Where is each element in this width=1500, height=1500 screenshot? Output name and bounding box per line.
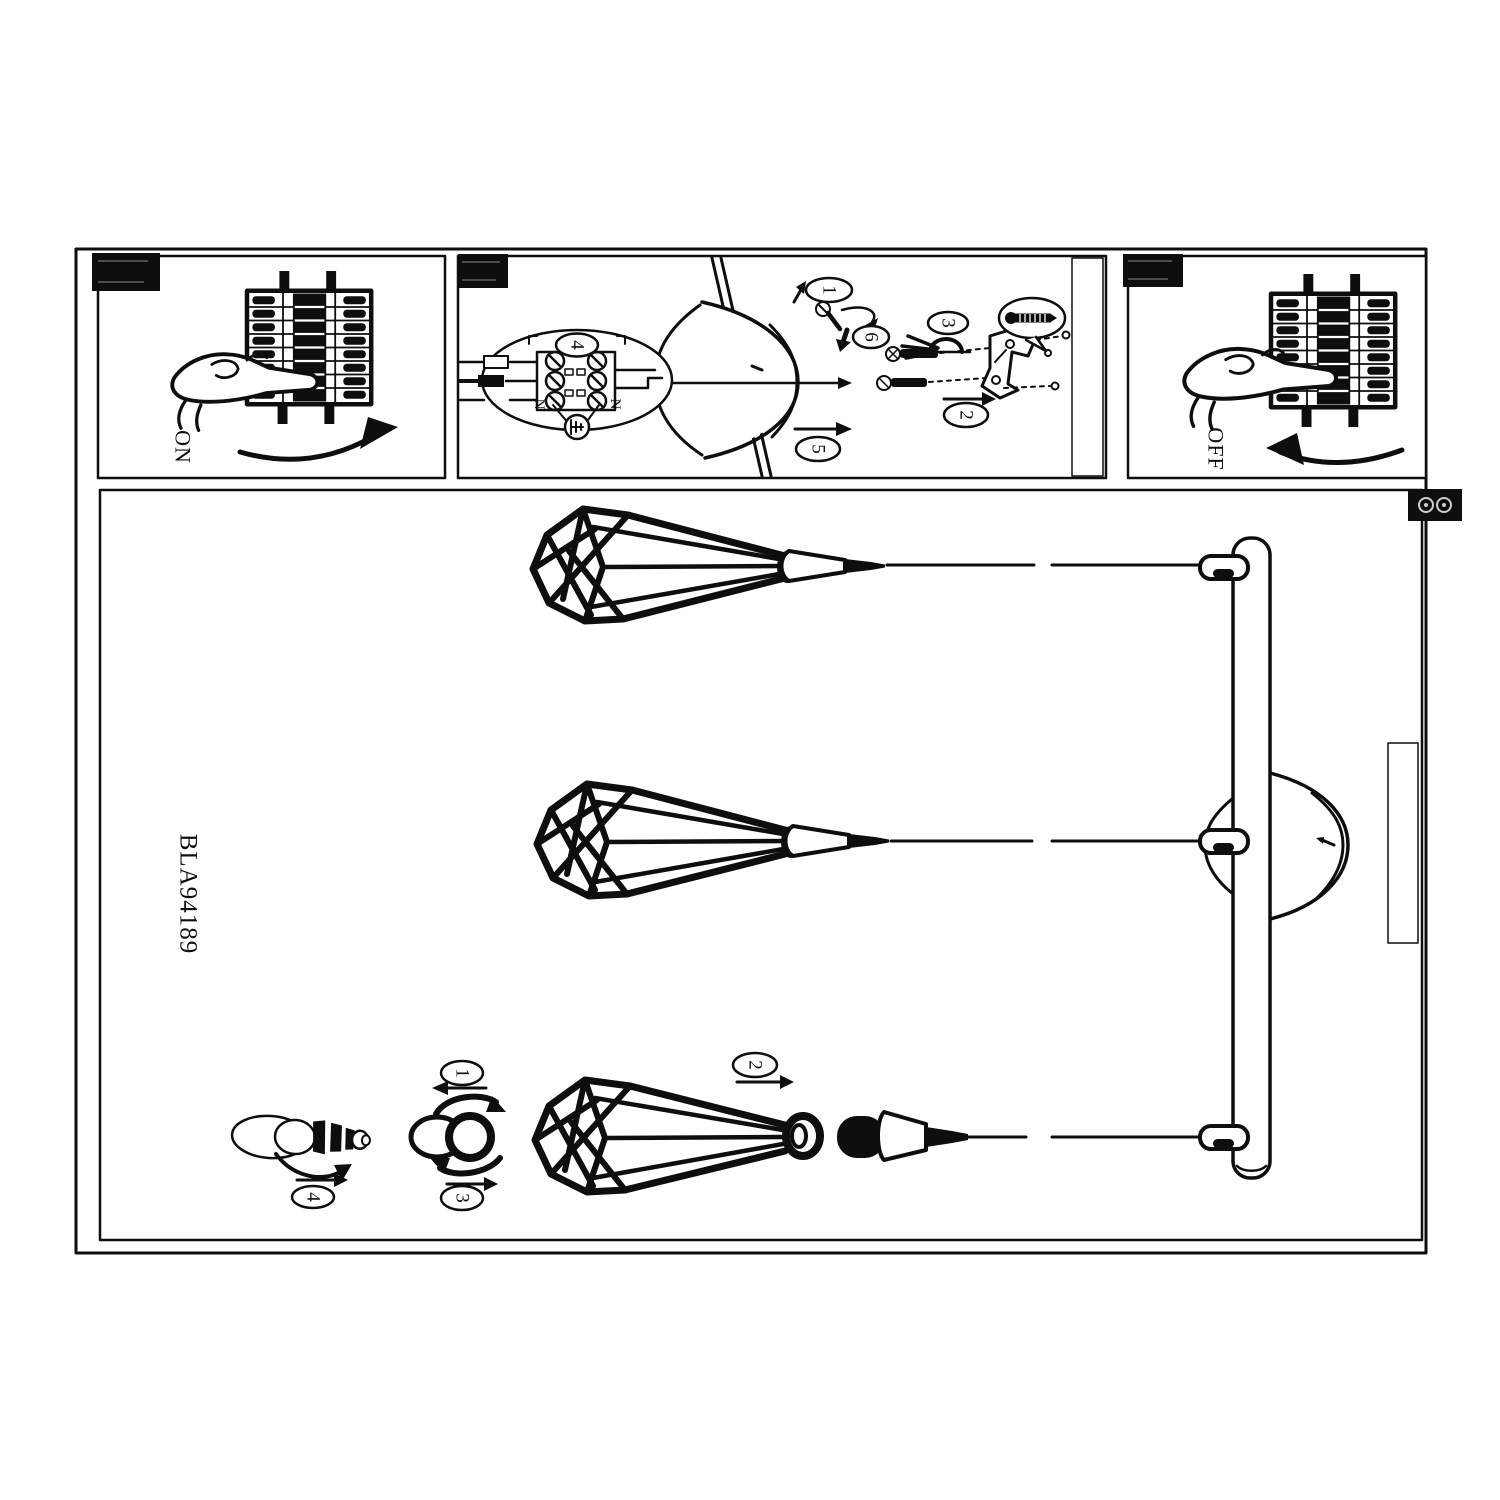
cord-gland-middle	[1200, 830, 1248, 853]
svg-text:2: 2	[745, 1060, 766, 1070]
svg-text:3: 3	[938, 318, 959, 328]
corner-label-box	[92, 253, 160, 291]
svg-text:5: 5	[808, 444, 829, 454]
svg-text:6: 6	[861, 332, 882, 342]
instruction-sheet: ON	[0, 0, 1500, 1500]
off-label: OFF	[1204, 427, 1229, 470]
instruction-drawing: ON	[0, 0, 1500, 1500]
svg-text:2: 2	[956, 410, 977, 420]
model-number: BLA94189	[175, 834, 202, 955]
neutral-label-right: N	[607, 399, 623, 410]
breaker-illustration	[1271, 274, 1395, 427]
corner-label-box	[1408, 489, 1462, 521]
panel-assembly: BLA94189	[100, 489, 1462, 1240]
svg-text:1: 1	[819, 285, 840, 295]
breaker-illustration	[247, 271, 371, 424]
svg-text:4: 4	[303, 1192, 324, 1202]
fixture-bar	[1233, 538, 1270, 1178]
svg-text:1: 1	[452, 1068, 473, 1078]
cord-gland-bottom	[1200, 1126, 1248, 1149]
svg-text:3: 3	[452, 1193, 473, 1203]
corner-label-box	[458, 254, 508, 288]
panel-power-off: OFF	[1123, 254, 1426, 478]
panel-wiring: 4 N N 1 6 5	[458, 254, 1106, 478]
neutral-label-left: N	[531, 399, 547, 410]
on-label: ON	[171, 430, 196, 464]
cord-gland-top	[1200, 556, 1248, 579]
corner-label-box	[1123, 254, 1183, 287]
svg-text:4: 4	[567, 340, 588, 350]
panel-power-on: ON	[92, 253, 445, 478]
